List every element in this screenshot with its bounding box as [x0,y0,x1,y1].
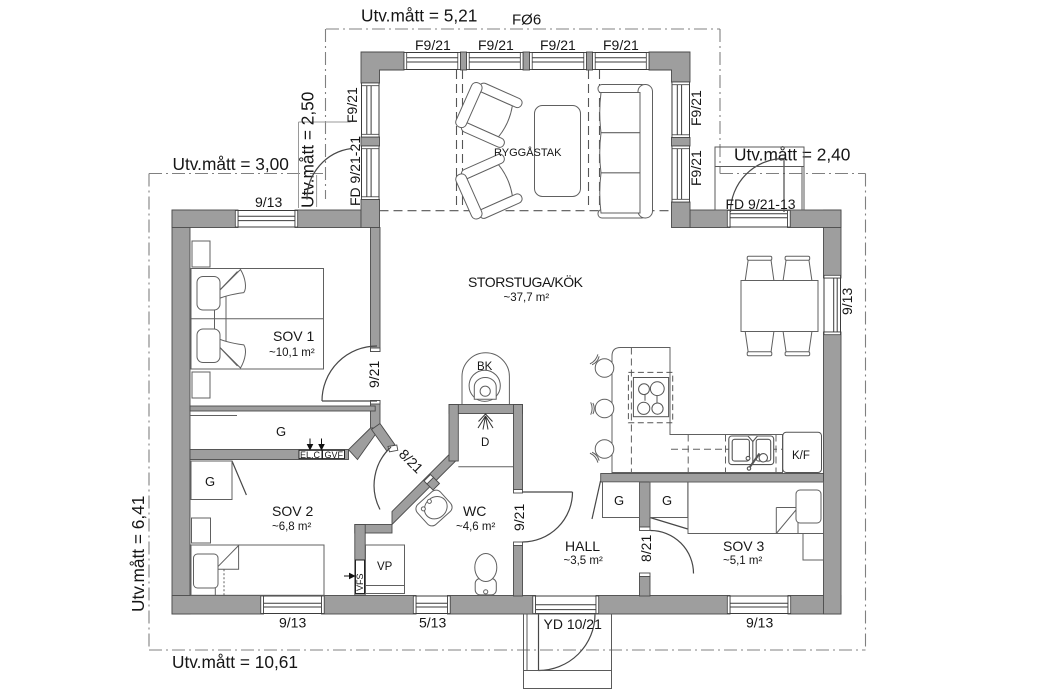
svg-text:F9/21: F9/21 [478,37,514,53]
svg-text:~6,8 m²: ~6,8 m² [272,521,311,533]
svg-text:YD 10/21: YD 10/21 [544,616,603,632]
svg-text:Utv.mått = 5,21: Utv.mått = 5,21 [361,6,477,26]
svg-text:FD 9/21-13: FD 9/21-13 [726,196,796,212]
svg-text:5/13: 5/13 [419,615,446,631]
svg-text:VP: VP [377,561,393,573]
svg-text:~10,1 m²: ~10,1 m² [269,347,315,359]
svg-text:~37,7 m²: ~37,7 m² [504,292,550,304]
svg-text:F9/21: F9/21 [688,150,704,186]
svg-text:F9/21: F9/21 [540,37,576,53]
svg-text:STORSTUGA/KÖK: STORSTUGA/KÖK [468,273,584,290]
svg-text:SOV 2: SOV 2 [272,503,313,519]
svg-text:~3,5 m²: ~3,5 m² [564,555,603,567]
svg-text:FD 9/21-21: FD 9/21-21 [347,136,363,206]
svg-text:Utv.mått = 6,41: Utv.mått = 6,41 [128,496,148,612]
svg-text:F9/21: F9/21 [688,90,704,126]
svg-text:F9/21: F9/21 [603,37,639,53]
svg-text:F9/21: F9/21 [344,87,360,123]
svg-text:D: D [481,437,489,449]
svg-text:SOV 1: SOV 1 [273,328,314,344]
svg-text:G: G [205,474,215,489]
svg-text:9/13: 9/13 [839,288,855,315]
svg-text:9/21: 9/21 [366,361,382,388]
svg-text:RYGGÅSTAK: RYGGÅSTAK [494,146,562,159]
svg-text:SOV 3: SOV 3 [723,538,764,554]
svg-text:K/F: K/F [792,450,810,462]
svg-text:VFS: VFS [355,573,365,591]
svg-text:9/13: 9/13 [255,194,282,210]
svg-text:HALL: HALL [565,538,600,554]
svg-text:9/13: 9/13 [746,615,773,631]
svg-text:EL.C: EL.C [300,450,321,460]
svg-text:G: G [614,493,624,508]
svg-text:F9/21: F9/21 [415,37,451,53]
svg-text:~4,6 m²: ~4,6 m² [456,521,495,533]
svg-text:Utv.mått = 10,61: Utv.mått = 10,61 [172,652,298,672]
svg-text:9/13: 9/13 [279,615,306,631]
svg-text:BK: BK [477,361,493,373]
svg-text:~5,1 m²: ~5,1 m² [723,555,762,567]
svg-text:G: G [276,424,286,439]
svg-text:WC: WC [463,503,486,519]
svg-text:GVF: GVF [325,450,344,460]
svg-text:G: G [662,493,672,508]
svg-text:FØ6: FØ6 [512,12,541,29]
svg-text:8/21: 8/21 [638,535,654,562]
svg-text:9/21: 9/21 [511,504,527,531]
svg-text:Utv.mått = 3,00: Utv.mått = 3,00 [173,154,289,174]
